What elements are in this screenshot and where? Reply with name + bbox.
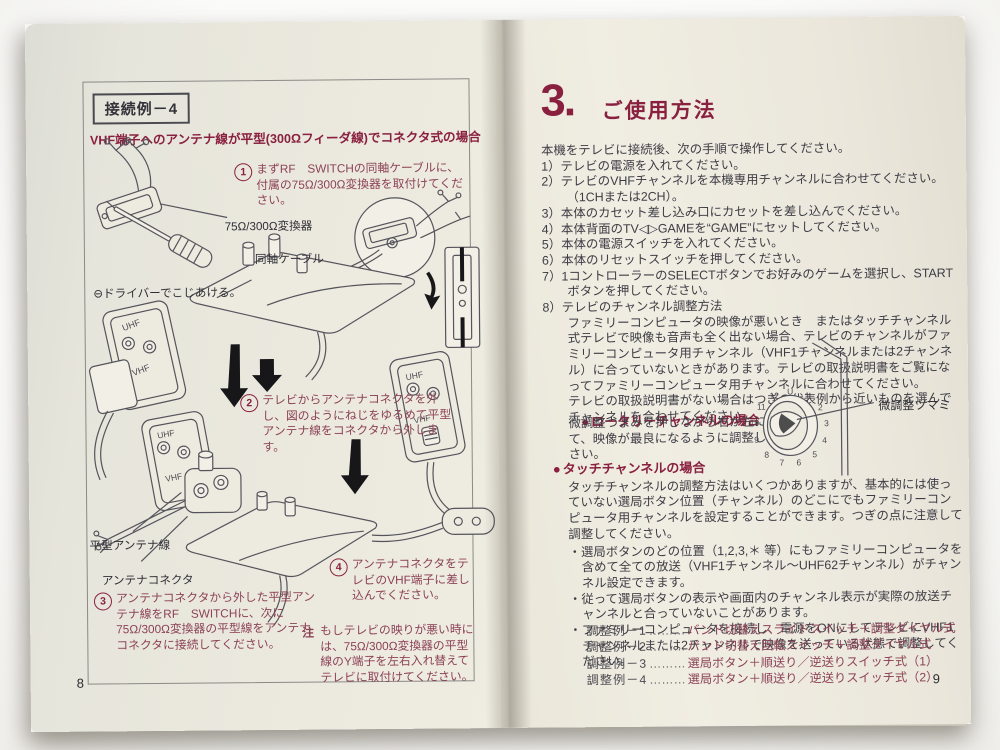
left-page: 接続例－4 VHF端子へのアンテナ線が平型(300Ωフィーダ線)でコネクタ式の場… xyxy=(25,20,501,732)
flat-wire-label: 平型アンテナ線 xyxy=(89,537,170,554)
list-item: 2）テレビのVHFチャンネルを本機専用チャンネルに合わせてください。（1CHまた… xyxy=(541,171,957,206)
antenna-connector-label: アンテナコネクタ xyxy=(102,572,194,589)
converter-label: 75Ω/300Ω変換器 xyxy=(225,218,313,235)
note-text: もしテレビの映りが悪い時には、75Ω/300Ω変換器の平型線のY端子を左右入れ替… xyxy=(320,622,475,686)
step-1-text: まずRF SWITCHの同軸ケーブルに、付属の75Ω/300Ω変換器を取付けてく… xyxy=(256,160,466,209)
step-2-number: 2 xyxy=(240,394,258,412)
right-page: 3. ご使用方法 本機をテレビに接続後、次の手順で操作してください。 1）テレビ… xyxy=(495,16,971,728)
step-4-text: アンテナコネクタをテレビのVHF端子に差し込んでください。 xyxy=(352,556,470,604)
section-title: ご使用方法 xyxy=(602,94,717,125)
adjustment-examples: 調整例－1………バンド切替えスライドスイッチ＋調整ダイヤル式 調整例－2………バ… xyxy=(586,620,956,689)
scanned-manual-photo: 接続例－4 VHF端子へのアンテナ線が平型(300Ωフィーダ線)でコネクタ式の場… xyxy=(0,0,1000,750)
list-item: 7）1コントローラーのSELECTボタンでお好みのゲームを選択し、STARTボタ… xyxy=(542,266,958,301)
example-row: 調整例－4………選局ボタン＋順送り／逆送りスイッチ式（2） xyxy=(587,669,957,689)
touch-bullet: ・従って選局ボタンの表示や画面内のチャンネル表示が実際の放送チャンネルと合ってい… xyxy=(569,589,964,624)
touch-channel-body: タッチチャンネルの調整方法はいくつかありますが、基本的には使っていない選局ボタン… xyxy=(553,477,964,543)
section-tag: 接続例－4 xyxy=(93,93,191,125)
step-3: 3 アンテナコネクタから外した平型アンテナ線をRF SWITCHに、次に75Ω/… xyxy=(94,590,319,655)
right-page-number: 9 xyxy=(933,671,940,686)
step-4-number: 4 xyxy=(330,558,348,576)
step-1-number: 1 xyxy=(234,163,252,181)
booklet-spine-shadow xyxy=(480,20,532,728)
touch-channel-heading: ●タッチチャンネルの場合 xyxy=(553,458,963,477)
coax-label: 同軸ケーブル xyxy=(255,251,324,268)
step-1: 1 まずRF SWITCHの同軸ケーブルに、付属の75Ω/300Ω変換器を取付け… xyxy=(234,160,466,209)
left-page-number: 8 xyxy=(77,676,84,691)
step-3-text: アンテナコネクタから外した平型アンテナ線をRF SWITCHに、次に75Ω/30… xyxy=(116,590,319,655)
bullet-icon: ● xyxy=(553,461,561,476)
note-label: 注 xyxy=(302,624,314,687)
section-number: 3. xyxy=(540,77,574,122)
note-block: 注 もしテレビの映りが悪い時には、75Ω/300Ω変換器の平型線のY端子を左右入… xyxy=(302,622,475,686)
step-3-number: 3 xyxy=(94,592,112,610)
manual-booklet: 接続例－4 VHF端子へのアンテナ線が平型(300Ωフィーダ線)でコネクタ式の場… xyxy=(25,16,971,732)
fine-tune-knob-label: 微調整ツマミ xyxy=(878,396,950,414)
touch-bullet: ・選局ボタンのどの位置（1,2,3,＊ 等）にもファミリーコンピュータを含めて全… xyxy=(568,541,963,592)
step-4: 4 アンテナコネクタをテレビのVHF端子に差し込んでください。 xyxy=(330,556,470,604)
